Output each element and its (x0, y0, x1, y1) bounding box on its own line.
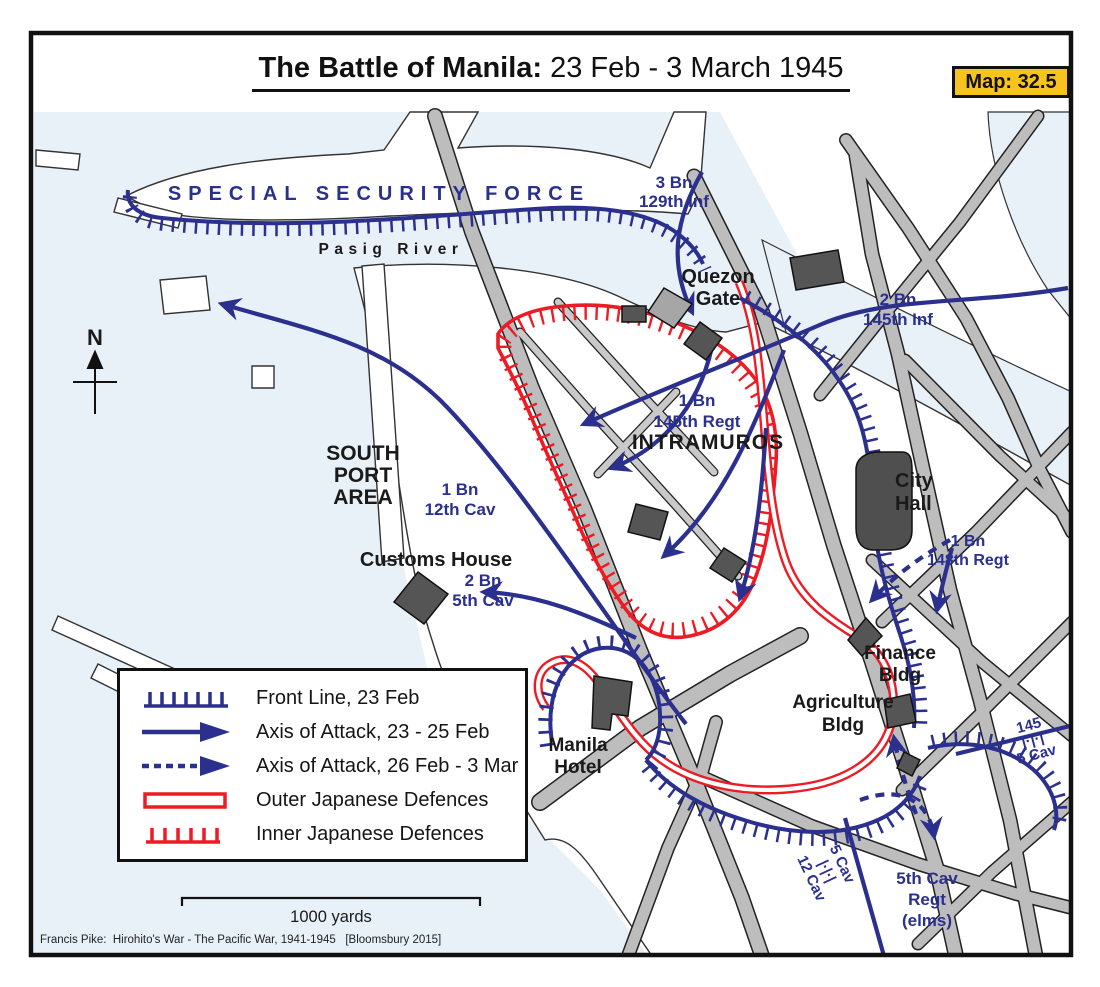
map-label-compass-letter: N (87, 325, 103, 350)
map-label-pasig-river: Pasig River (319, 241, 464, 258)
map-label-south-port-area: SOUTHPORTAREA (326, 442, 400, 509)
legend-row-axis-solid: Axis of Attack, 23 - 25 Feb (138, 715, 525, 749)
legend-label: Axis of Attack, 23 - 25 Feb (256, 721, 489, 744)
front-line-icon (138, 685, 234, 711)
map-label-scale-label: 1000 yards (290, 908, 372, 926)
legend-row-inner-defences: Inner Japanese Defences (138, 817, 525, 851)
axis-solid-icon (138, 719, 234, 745)
building (622, 306, 646, 322)
map-number-badge: Map: 32.5 (952, 66, 1070, 98)
legend-row-outer-defences: Outer Japanese Defences (138, 783, 525, 817)
legend-label: Outer Japanese Defences (256, 789, 488, 812)
map-label-intramuros: INTRAMUROS (632, 431, 784, 454)
legend-label: Axis of Attack, 26 Feb - 3 Mar (256, 755, 518, 778)
map-page: SPECIAL SECURITY FORCEPasig River3 Bn129… (0, 0, 1100, 987)
map-label-customs-house: Customs House (360, 549, 512, 571)
legend-row-axis-dashed: Axis of Attack, 26 Feb - 3 Mar (138, 749, 525, 783)
title-bold: The Battle of Manila: (258, 52, 542, 84)
pier (160, 276, 210, 314)
legend-label: Front Line, 23 Feb (256, 687, 419, 710)
outer-defences-icon (138, 787, 234, 813)
map-label-city-hall: CityHall (895, 470, 934, 515)
legend-row-front-line: Front Line, 23 Feb (138, 681, 525, 715)
inner-defences-icon (138, 821, 234, 847)
building (790, 250, 844, 290)
map-label-special-security-force: SPECIAL SECURITY FORCE (168, 183, 590, 205)
title-rest: 23 Feb - 3 March 1945 (542, 52, 843, 84)
pier (36, 150, 80, 170)
pier (252, 366, 274, 388)
page-title: The Battle of Manila: 23 Feb - 3 March 1… (30, 52, 1072, 92)
legend-label: Inner Japanese Defences (256, 823, 484, 846)
legend-box: Front Line, 23 Feb Axis of Attack, 23 - … (117, 668, 528, 862)
map-label-manila-hotel: ManilaHotel (548, 735, 608, 778)
axis-dashed-icon (138, 753, 234, 779)
attribution-text: Francis Pike: Hirohito's War - The Pacif… (40, 934, 441, 946)
